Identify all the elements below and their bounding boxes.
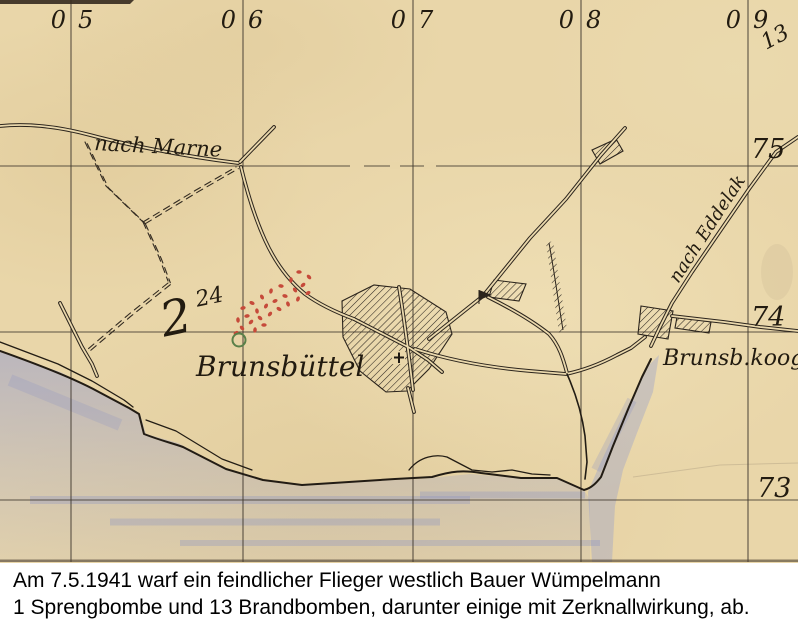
- grid-col-06-digit: 6: [248, 6, 263, 34]
- top-edge-strip: [0, 0, 134, 4]
- caption-line-1: Am 7.5.1941 warf ein feindlicher Flieger…: [13, 568, 798, 595]
- grid-col-07-digit: 7: [418, 6, 434, 34]
- green-figure-superscript: 24: [192, 282, 226, 312]
- water-shading: [0, 352, 659, 562]
- grid-col-06-prefix: 0: [221, 6, 236, 34]
- label-brunsbuettel: Brunsbüttel: [195, 350, 364, 383]
- map-area: 2 24 nach Marne Brunsbüttel Brunsb.koog …: [0, 0, 798, 563]
- grid-col-05-prefix: 0: [51, 6, 66, 34]
- pencil-smudge: [761, 244, 793, 300]
- caption-block: Am 7.5.1941 warf ein feindlicher Flieger…: [0, 563, 798, 628]
- bomb-impact-dots: [233, 270, 312, 336]
- label-nach-eddelak: nach Eddelak: [665, 171, 750, 286]
- water-left-bank: [0, 352, 590, 562]
- grid-row-74: 74: [751, 302, 785, 333]
- map-canvas: 2 24 nach Marne Brunsbüttel Brunsb.koog …: [0, 0, 798, 563]
- bottom-edge-strip: [0, 560, 798, 563]
- label-brunsb-koog: Brunsb.koog: [662, 346, 798, 371]
- grid-row-75: 75: [751, 134, 785, 165]
- grid-col-07-prefix: 0: [391, 6, 406, 34]
- scanned-map-page: 2 24 nach Marne Brunsbüttel Brunsb.koog …: [0, 0, 798, 628]
- grid-col-08-prefix: 0: [559, 6, 574, 34]
- grid-col-08-digit: 8: [586, 6, 601, 34]
- green-annotations: 2 24: [154, 282, 245, 348]
- grid-col-05-digit: 5: [78, 6, 93, 34]
- green-figure: 2: [154, 287, 197, 348]
- grid-col-09-prefix: 0: [726, 6, 741, 34]
- label-nach-marne: nach Marne: [94, 131, 223, 162]
- place-labels: nach Marne Brunsbüttel Brunsb.koog nach …: [94, 131, 798, 383]
- caption-line-2: 1 Sprengbombe und 13 Brandbomben, darunt…: [13, 595, 798, 622]
- grid-row-73: 73: [757, 473, 791, 504]
